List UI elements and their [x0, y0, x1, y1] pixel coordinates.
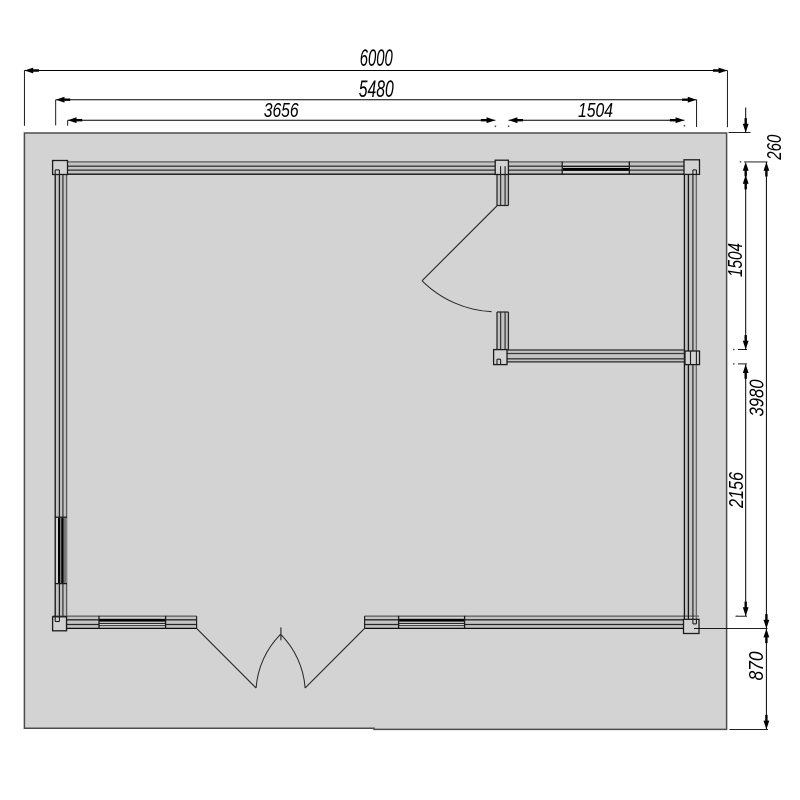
svg-text:1504: 1504 — [725, 243, 747, 277]
svg-text:5480: 5480 — [359, 76, 394, 103]
svg-text:3656: 3656 — [264, 100, 300, 122]
svg-text:1504: 1504 — [578, 100, 613, 122]
svg-text:260: 260 — [764, 135, 786, 161]
svg-text:3980: 3980 — [747, 380, 769, 417]
svg-text:2156: 2156 — [726, 471, 748, 509]
svg-text:870: 870 — [746, 652, 768, 681]
svg-text:6000: 6000 — [360, 45, 393, 72]
